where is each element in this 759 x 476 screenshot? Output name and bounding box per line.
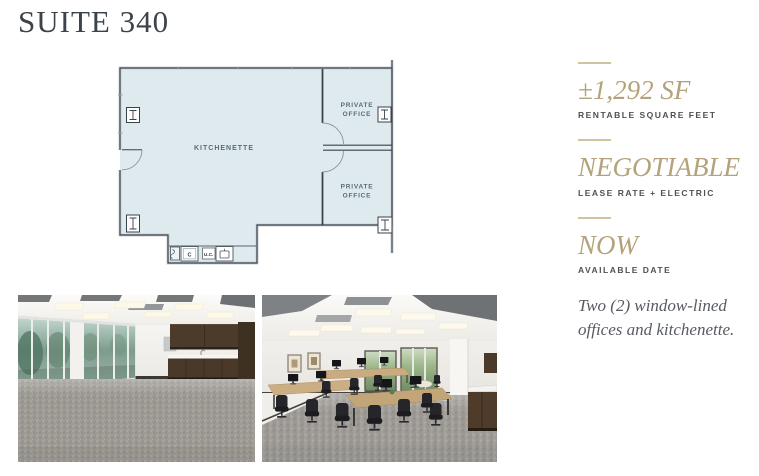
stat-value: NEGOTIABLE — [578, 153, 754, 181]
room-label-private-office-bottom-1: PRIVATE — [341, 184, 374, 191]
stat-label: AVAILABLE DATE — [578, 265, 754, 275]
stat-label: RENTABLE SQUARE FEET — [578, 110, 754, 120]
plant — [390, 390, 395, 395]
floor-plan-svg: C U.C. KITCHENETTE PRIVATE OFFICE PRIVAT… — [113, 56, 405, 268]
photo-empty-office — [18, 295, 255, 462]
carpet — [18, 379, 255, 462]
suite-listing-page: SUITE 340 — [0, 0, 759, 476]
photo-furnished-office — [262, 295, 497, 462]
floor-outline — [116, 60, 392, 263]
stat-available-date: NOW AVAILABLE DATE — [578, 217, 754, 275]
stat-value: ±1,292 SF — [578, 76, 754, 104]
uc-label: U.C. — [204, 252, 214, 258]
stat-divider — [578, 62, 611, 64]
room-label-private-office-bottom-2: OFFICE — [343, 193, 372, 200]
stat-label: LEASE RATE + ELECTRIC — [578, 188, 754, 198]
room-label-private-office-top-2: OFFICE — [343, 111, 372, 118]
description-text: Two (2) window-lined offices and kitchen… — [578, 294, 759, 342]
stats-sidebar: ±1,292 SF RENTABLE SQUARE FEET NEGOTIABL… — [578, 62, 754, 359]
room-label-kitchenette: KITCHENETTE — [194, 145, 254, 152]
floor-plan: C U.C. KITCHENETTE PRIVATE OFFICE PRIVAT… — [113, 56, 405, 268]
stat-rentable-sf: ±1,292 SF RENTABLE SQUARE FEET — [578, 62, 754, 120]
ceiling — [262, 295, 497, 341]
stat-lease-rate: NEGOTIABLE LEASE RATE + ELECTRIC — [578, 139, 754, 197]
stat-divider — [578, 139, 611, 141]
stat-divider — [578, 217, 611, 219]
room-label-private-office-top-1: PRIVATE — [341, 102, 374, 109]
stat-value: NOW — [578, 231, 754, 259]
page-title: SUITE 340 — [18, 4, 169, 40]
cabinet-label: C — [188, 252, 192, 258]
